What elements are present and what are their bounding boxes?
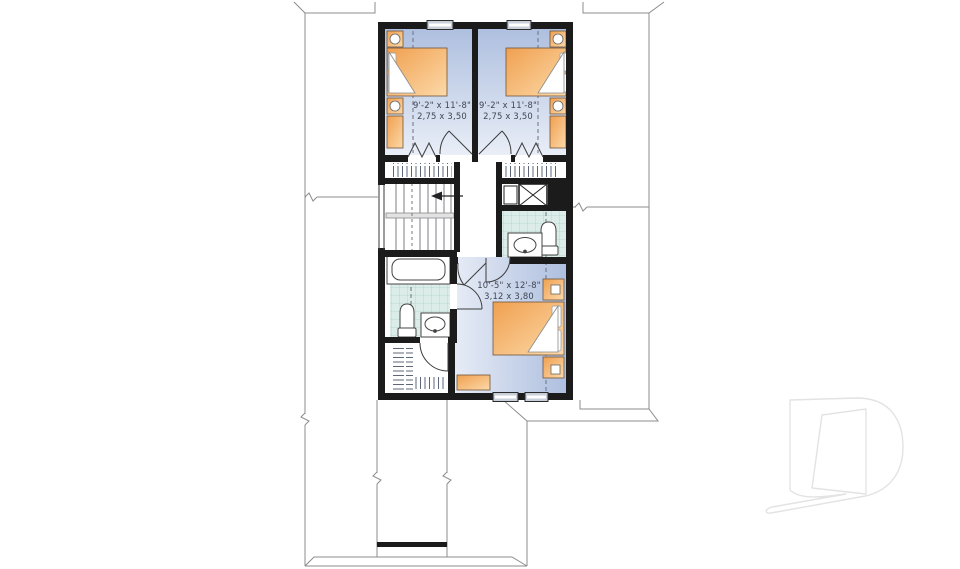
builder-d-logo (766, 398, 903, 513)
toilet-tank (398, 328, 416, 337)
porch-wall-below (377, 542, 447, 547)
dresser-icon (387, 116, 403, 148)
toilet-icon (541, 222, 556, 246)
dresser-icon (457, 375, 490, 390)
break-mark-icon (442, 472, 452, 484)
bedroom-right-dim-ft: 9'-2" x 11'-8" (479, 100, 537, 110)
window-icon (525, 393, 548, 402)
stair-knee-wall (379, 185, 384, 250)
break-mark-icon (300, 413, 310, 425)
break-mark-icon (575, 202, 587, 212)
window-icon (507, 21, 531, 30)
dresser-icon (550, 116, 566, 148)
floor-plan-canvas: 9'-2" x 11'-8" 2,75 x 3,50 9'-2" x 11'-8… (0, 0, 960, 569)
window-icon (427, 21, 453, 30)
stair-handrail (386, 213, 454, 218)
toilet-icon (400, 304, 414, 328)
break-mark-icon (372, 472, 382, 484)
attic-shaft-icon (504, 184, 547, 206)
window-icon (493, 393, 518, 402)
break-mark-icon (305, 192, 317, 202)
bedroom-right-dim-m: 2,75 x 3,50 (483, 111, 533, 121)
bedroom-left-dim-ft: 9'-2" x 11'-8" (413, 100, 471, 110)
master-bedroom-dim-ft: 10'-5" x 12'-8" (477, 280, 541, 290)
master-bedroom-dim-m: 3,12 x 3,80 (484, 291, 534, 301)
bedroom-left-dim-m: 2,75 x 3,50 (417, 111, 467, 121)
